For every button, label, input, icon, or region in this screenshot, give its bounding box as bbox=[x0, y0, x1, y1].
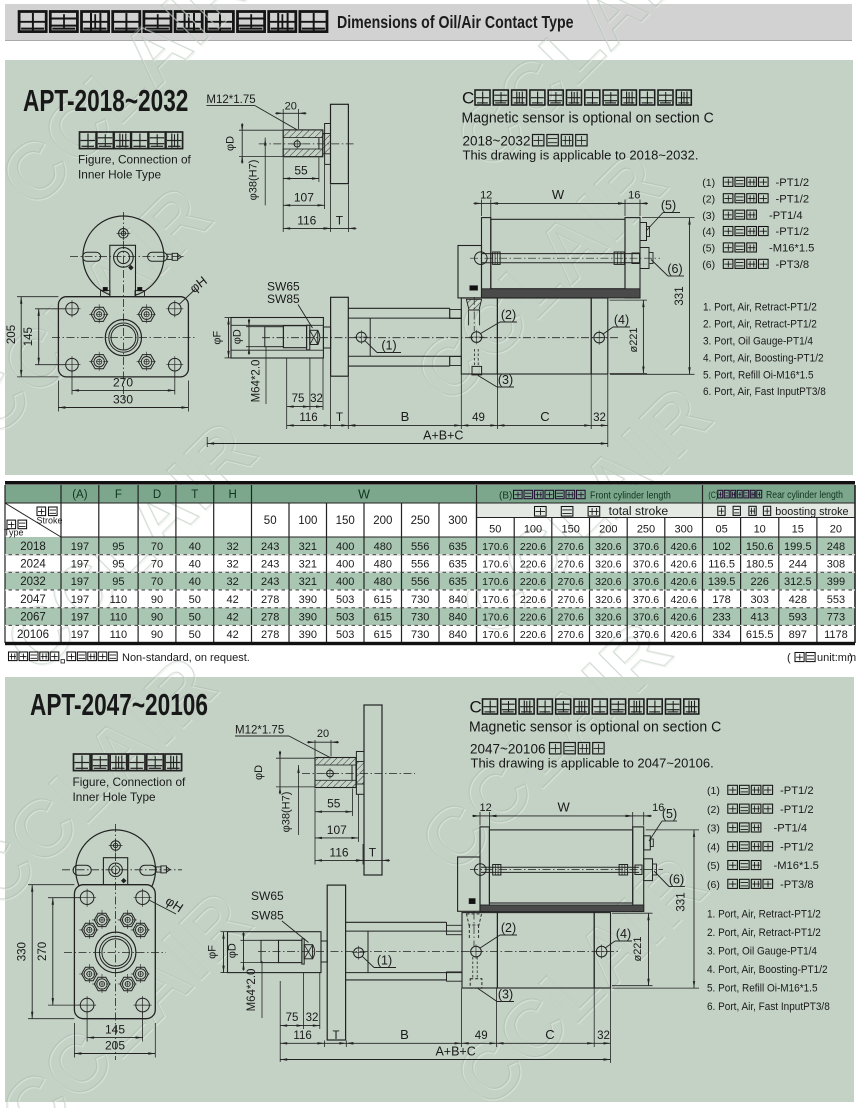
svg-text:615: 615 bbox=[374, 612, 392, 624]
svg-text:102: 102 bbox=[712, 541, 730, 553]
svg-text:-PT1/2: -PT1/2 bbox=[776, 226, 810, 238]
svg-text:553: 553 bbox=[827, 594, 845, 606]
svg-text:C: C bbox=[470, 698, 482, 717]
svg-text:250: 250 bbox=[637, 524, 655, 536]
svg-text:(4): (4) bbox=[616, 927, 631, 941]
svg-text:(3): (3) bbox=[707, 823, 720, 835]
svg-text:145: 145 bbox=[105, 1023, 125, 1037]
svg-text:243: 243 bbox=[261, 576, 279, 588]
svg-text:95: 95 bbox=[112, 541, 124, 553]
svg-text:2018~2032: 2018~2032 bbox=[463, 134, 531, 149]
svg-text:6. Port, Air, Fast InputPT3/8: 6. Port, Air, Fast InputPT3/8 bbox=[703, 386, 826, 399]
svg-text:32: 32 bbox=[593, 412, 606, 424]
svg-text:116.5: 116.5 bbox=[708, 559, 735, 571]
svg-text:T: T bbox=[336, 213, 344, 227]
svg-text:Stroke: Stroke bbox=[37, 516, 63, 526]
svg-text:197: 197 bbox=[71, 541, 89, 553]
svg-text:16: 16 bbox=[628, 190, 640, 202]
svg-text:32: 32 bbox=[306, 1012, 319, 1024]
svg-text:635: 635 bbox=[449, 559, 467, 571]
svg-text:6. Port, Air, Fast InputPT3/8: 6. Port, Air, Fast InputPT3/8 bbox=[707, 1000, 830, 1013]
svg-text:730: 730 bbox=[411, 612, 429, 624]
svg-text:390: 390 bbox=[299, 612, 317, 624]
svg-text:20: 20 bbox=[830, 524, 842, 536]
svg-text:420.6: 420.6 bbox=[671, 559, 697, 571]
svg-text:1. Port, Air, Retract-PT1/2: 1. Port, Air, Retract-PT1/2 bbox=[707, 908, 821, 921]
svg-text:2067: 2067 bbox=[20, 612, 46, 624]
svg-text:(C): (C) bbox=[708, 490, 718, 500]
svg-text:150.6: 150.6 bbox=[746, 541, 774, 553]
svg-text:840: 840 bbox=[449, 629, 467, 641]
svg-text:(6): (6) bbox=[669, 873, 684, 887]
svg-text:Rear cylinder length: Rear cylinder length bbox=[766, 489, 843, 501]
svg-text:110: 110 bbox=[110, 612, 128, 624]
svg-text:(1): (1) bbox=[377, 954, 392, 968]
svg-text:840: 840 bbox=[449, 594, 467, 606]
svg-text:400: 400 bbox=[336, 559, 354, 571]
svg-text:300: 300 bbox=[675, 524, 693, 536]
svg-text:320.6: 320.6 bbox=[595, 541, 621, 553]
svg-text:615: 615 bbox=[374, 629, 392, 641]
svg-text:107: 107 bbox=[294, 190, 314, 204]
svg-text:2. Port, Air, Retract-PT1/2: 2. Port, Air, Retract-PT1/2 bbox=[703, 318, 817, 331]
svg-text:-PT1/2: -PT1/2 bbox=[780, 804, 814, 816]
svg-text:(: ( bbox=[787, 652, 791, 664]
svg-text:197: 197 bbox=[71, 594, 89, 606]
svg-text:32: 32 bbox=[226, 541, 238, 553]
svg-text:248: 248 bbox=[827, 541, 845, 553]
svg-text:331: 331 bbox=[676, 892, 688, 911]
svg-text:Inner Hole Type: Inner Hole Type bbox=[78, 168, 162, 182]
svg-text:420.6: 420.6 bbox=[671, 576, 697, 588]
svg-text:(2): (2) bbox=[707, 804, 720, 816]
svg-text:APT-2018~2032: APT-2018~2032 bbox=[23, 82, 188, 117]
svg-text:32: 32 bbox=[226, 559, 238, 571]
svg-text:330: 330 bbox=[17, 942, 29, 961]
svg-text:(6): (6) bbox=[667, 262, 682, 276]
svg-text:199.5: 199.5 bbox=[784, 541, 812, 553]
svg-text:90: 90 bbox=[151, 594, 163, 606]
svg-text:205: 205 bbox=[105, 1039, 125, 1053]
svg-text:320.6: 320.6 bbox=[595, 594, 621, 606]
svg-text:42: 42 bbox=[226, 612, 238, 624]
svg-text:116: 116 bbox=[293, 1030, 311, 1042]
svg-text:(4): (4) bbox=[702, 226, 715, 238]
svg-text:Non-standard, on request.: Non-standard, on request. bbox=[122, 652, 250, 664]
svg-text:APT-2047~20106: APT-2047~20106 bbox=[30, 686, 208, 721]
svg-text:178: 178 bbox=[712, 594, 730, 606]
svg-text:480: 480 bbox=[374, 576, 392, 588]
svg-text:243: 243 bbox=[261, 541, 279, 553]
svg-text:2018: 2018 bbox=[20, 541, 46, 553]
svg-text:32: 32 bbox=[597, 1030, 610, 1042]
svg-text:32: 32 bbox=[310, 393, 323, 405]
svg-text:370.6: 370.6 bbox=[633, 629, 659, 641]
svg-text:303: 303 bbox=[751, 594, 769, 606]
svg-text:320.6: 320.6 bbox=[595, 629, 621, 641]
svg-text:70: 70 bbox=[151, 559, 163, 571]
svg-text:635: 635 bbox=[449, 576, 467, 588]
svg-text:φD: φD bbox=[253, 765, 265, 780]
svg-text:50: 50 bbox=[189, 612, 201, 624]
svg-text:75: 75 bbox=[286, 1012, 299, 1024]
svg-text:M12*1.75: M12*1.75 bbox=[235, 725, 284, 737]
svg-text:(4): (4) bbox=[614, 313, 629, 327]
svg-text:330: 330 bbox=[113, 393, 133, 407]
svg-text:556: 556 bbox=[411, 559, 429, 571]
svg-text:-PT1/2: -PT1/2 bbox=[780, 841, 814, 853]
svg-text:55: 55 bbox=[327, 797, 341, 811]
svg-text:2047: 2047 bbox=[20, 594, 46, 606]
svg-text:φ38(H7): φ38(H7) bbox=[248, 160, 260, 201]
svg-text:T: T bbox=[332, 1030, 339, 1042]
svg-text:W: W bbox=[557, 799, 570, 814]
svg-text:(1): (1) bbox=[702, 177, 715, 189]
svg-text:278: 278 bbox=[261, 612, 279, 624]
svg-text:145: 145 bbox=[23, 327, 35, 346]
svg-text:100: 100 bbox=[298, 515, 317, 527]
svg-text:2024: 2024 bbox=[20, 559, 46, 571]
svg-text:φF: φF bbox=[207, 945, 219, 959]
svg-text:320.6: 320.6 bbox=[595, 612, 621, 624]
svg-text:197: 197 bbox=[71, 559, 89, 571]
svg-text:370.6: 370.6 bbox=[633, 576, 659, 588]
svg-text:-PT1/4: -PT1/4 bbox=[774, 823, 808, 835]
svg-text:170.6: 170.6 bbox=[482, 576, 508, 588]
svg-text:556: 556 bbox=[411, 576, 429, 588]
svg-text:200: 200 bbox=[373, 515, 392, 527]
svg-text:420.6: 420.6 bbox=[671, 594, 697, 606]
svg-text:897: 897 bbox=[789, 629, 807, 641]
svg-text:107: 107 bbox=[327, 823, 347, 837]
svg-text:170.6: 170.6 bbox=[482, 629, 508, 641]
svg-text:331: 331 bbox=[674, 286, 686, 305]
svg-text:334: 334 bbox=[712, 629, 730, 641]
svg-text:D: D bbox=[153, 489, 161, 501]
svg-text:197: 197 bbox=[71, 629, 89, 641]
svg-text:116: 116 bbox=[297, 213, 316, 227]
svg-text:(A): (A) bbox=[72, 489, 88, 501]
svg-text:270.6: 270.6 bbox=[558, 576, 584, 588]
svg-text:428: 428 bbox=[789, 594, 807, 606]
svg-text:12: 12 bbox=[480, 190, 492, 202]
svg-text:2047~20106: 2047~20106 bbox=[470, 742, 545, 757]
svg-text:197: 197 bbox=[71, 612, 89, 624]
svg-text:50: 50 bbox=[189, 629, 201, 641]
svg-text:-PT1/2: -PT1/2 bbox=[780, 785, 814, 797]
svg-text:Figure, Connection of: Figure, Connection of bbox=[73, 775, 187, 789]
svg-text:220.6: 220.6 bbox=[520, 594, 546, 606]
svg-text:615: 615 bbox=[374, 594, 392, 606]
svg-text:70: 70 bbox=[151, 541, 163, 553]
svg-text:This drawing is applicable to: This drawing is applicable to 2018~2032. bbox=[463, 148, 699, 163]
svg-text:B: B bbox=[401, 409, 410, 424]
svg-text:220.6: 220.6 bbox=[520, 612, 546, 624]
svg-text:243: 243 bbox=[261, 559, 279, 571]
svg-text:55: 55 bbox=[294, 164, 308, 178]
svg-text:(1): (1) bbox=[707, 785, 720, 797]
svg-text:116: 116 bbox=[299, 412, 317, 424]
svg-text:308: 308 bbox=[827, 559, 845, 571]
svg-text:150: 150 bbox=[336, 515, 355, 527]
svg-text:-PT3/8: -PT3/8 bbox=[780, 879, 814, 891]
svg-text:T: T bbox=[336, 412, 343, 424]
svg-text:226: 226 bbox=[751, 576, 769, 588]
svg-text:270.6: 270.6 bbox=[558, 612, 584, 624]
svg-text:370.6: 370.6 bbox=[633, 541, 659, 553]
svg-text:270.6: 270.6 bbox=[558, 594, 584, 606]
svg-text:70: 70 bbox=[151, 576, 163, 588]
svg-text:480: 480 bbox=[374, 559, 392, 571]
svg-text:Front cylinder length: Front cylinder length bbox=[590, 490, 671, 502]
svg-text:ø221: ø221 bbox=[628, 327, 640, 352]
svg-text:φF: φF bbox=[212, 330, 224, 344]
svg-text:116: 116 bbox=[329, 845, 348, 859]
svg-text:370.6: 370.6 bbox=[633, 559, 659, 571]
svg-text:T: T bbox=[369, 845, 377, 859]
svg-text:220.6: 220.6 bbox=[520, 559, 546, 571]
svg-text:(2): (2) bbox=[702, 193, 715, 205]
svg-text:-PT1/2: -PT1/2 bbox=[776, 177, 810, 189]
svg-text:(3): (3) bbox=[702, 210, 715, 222]
svg-text:M64*2.0: M64*2.0 bbox=[246, 969, 258, 1012]
svg-text:M12*1.75: M12*1.75 bbox=[206, 94, 255, 106]
svg-text:556: 556 bbox=[411, 541, 429, 553]
svg-text:503: 503 bbox=[336, 629, 354, 641]
svg-text:20106: 20106 bbox=[17, 629, 49, 641]
svg-text:90: 90 bbox=[151, 629, 163, 641]
svg-text:615.5: 615.5 bbox=[746, 629, 774, 641]
svg-text:480: 480 bbox=[374, 541, 392, 553]
svg-text:200: 200 bbox=[599, 524, 617, 536]
svg-text:170.6: 170.6 bbox=[482, 594, 508, 606]
svg-text:773: 773 bbox=[827, 612, 845, 624]
svg-text:-M16*1.5: -M16*1.5 bbox=[774, 860, 819, 872]
svg-text:390: 390 bbox=[299, 629, 317, 641]
svg-text:20: 20 bbox=[285, 101, 297, 113]
svg-text:95: 95 bbox=[112, 559, 124, 571]
svg-text:49: 49 bbox=[475, 1030, 488, 1042]
svg-text:boosting stroke: boosting stroke bbox=[775, 506, 848, 518]
svg-text:400: 400 bbox=[336, 576, 354, 588]
svg-text:50: 50 bbox=[264, 515, 277, 527]
svg-text:2032: 2032 bbox=[20, 576, 46, 588]
svg-text:1. Port, Air, Retract-PT1/2: 1. Port, Air, Retract-PT1/2 bbox=[703, 301, 817, 314]
svg-text:312.5: 312.5 bbox=[784, 576, 812, 588]
svg-text:SW85: SW85 bbox=[267, 292, 300, 306]
svg-text:-PT1/2: -PT1/2 bbox=[776, 193, 810, 205]
svg-text:φD: φD bbox=[232, 329, 244, 344]
svg-text:170.6: 170.6 bbox=[482, 541, 508, 553]
svg-text:270: 270 bbox=[37, 942, 49, 961]
svg-text:H: H bbox=[228, 489, 236, 501]
svg-text:220.6: 220.6 bbox=[520, 629, 546, 641]
svg-text:32: 32 bbox=[226, 576, 238, 588]
svg-text:840: 840 bbox=[449, 612, 467, 624]
svg-text:390: 390 bbox=[299, 594, 317, 606]
svg-text:503: 503 bbox=[336, 594, 354, 606]
svg-text:ø221: ø221 bbox=[632, 936, 644, 961]
svg-text:50: 50 bbox=[189, 594, 201, 606]
svg-text:220.6: 220.6 bbox=[520, 576, 546, 588]
svg-text:370.6: 370.6 bbox=[633, 612, 659, 624]
svg-text:420.6: 420.6 bbox=[671, 541, 697, 553]
svg-text:A+B+C: A+B+C bbox=[435, 1045, 475, 1059]
svg-text:1178: 1178 bbox=[824, 629, 848, 641]
svg-text:2. Port, Air, Retract-PT1/2: 2. Port, Air, Retract-PT1/2 bbox=[707, 926, 821, 939]
svg-text:320.6: 320.6 bbox=[595, 559, 621, 571]
svg-text:110: 110 bbox=[110, 629, 128, 641]
svg-text:(5): (5) bbox=[702, 243, 715, 255]
svg-text:635: 635 bbox=[449, 541, 467, 553]
svg-text:Inner Hole Type: Inner Hole Type bbox=[73, 790, 157, 804]
svg-text:170.6: 170.6 bbox=[482, 612, 508, 624]
svg-text:503: 503 bbox=[336, 612, 354, 624]
svg-text:4. Port, Air, Boosting-PT1/2: 4. Port, Air, Boosting-PT1/2 bbox=[703, 352, 824, 365]
svg-text:(2): (2) bbox=[501, 921, 516, 935]
svg-text:197: 197 bbox=[71, 576, 89, 588]
svg-text:278: 278 bbox=[261, 594, 279, 606]
svg-text:150: 150 bbox=[562, 524, 580, 536]
svg-text:4. Port, Air, Boosting-PT1/2: 4. Port, Air, Boosting-PT1/2 bbox=[707, 963, 828, 976]
svg-text:75: 75 bbox=[292, 393, 305, 405]
svg-text:total stroke: total stroke bbox=[609, 504, 669, 518]
svg-text:W: W bbox=[358, 488, 370, 502]
svg-text:180.5: 180.5 bbox=[746, 559, 774, 571]
svg-text:321: 321 bbox=[299, 559, 317, 571]
svg-text:-PT3/8: -PT3/8 bbox=[776, 259, 810, 271]
svg-text:(1): (1) bbox=[381, 339, 396, 353]
svg-text:(6): (6) bbox=[707, 879, 720, 891]
svg-text:Figure, Connection of: Figure, Connection of bbox=[78, 153, 192, 167]
svg-text:This drawing is applicable to: This drawing is applicable to 2047~20106… bbox=[471, 756, 714, 771]
svg-text:05: 05 bbox=[715, 524, 727, 536]
svg-text:(5): (5) bbox=[661, 199, 676, 213]
svg-text:): ) bbox=[849, 652, 853, 664]
svg-text:(3): (3) bbox=[498, 373, 513, 387]
svg-text:(6): (6) bbox=[702, 259, 715, 271]
svg-text:F: F bbox=[115, 489, 122, 501]
svg-text:10: 10 bbox=[754, 524, 766, 536]
svg-text:-PT1/4: -PT1/4 bbox=[769, 210, 803, 222]
svg-text:320.6: 320.6 bbox=[595, 576, 621, 588]
svg-text:SW85: SW85 bbox=[251, 909, 284, 923]
svg-text:270: 270 bbox=[113, 375, 133, 389]
svg-text:M64*2.0: M64*2.0 bbox=[251, 360, 263, 403]
svg-text:399: 399 bbox=[827, 576, 845, 588]
svg-text:-M16*1.5: -M16*1.5 bbox=[769, 243, 814, 255]
svg-text:730: 730 bbox=[411, 594, 429, 606]
svg-text:730: 730 bbox=[411, 629, 429, 641]
svg-text:321: 321 bbox=[299, 541, 317, 553]
svg-text:400: 400 bbox=[336, 541, 354, 553]
svg-text:Magnetic sensor is optional on: Magnetic sensor is optional on section C bbox=[469, 719, 721, 735]
svg-text:20: 20 bbox=[317, 728, 329, 740]
svg-text:300: 300 bbox=[448, 515, 467, 527]
svg-text:(B): (B) bbox=[499, 490, 512, 501]
svg-text:593: 593 bbox=[789, 612, 807, 624]
svg-text:270.6: 270.6 bbox=[558, 559, 584, 571]
svg-text:16: 16 bbox=[652, 802, 664, 814]
svg-text:90: 90 bbox=[151, 612, 163, 624]
svg-text:T: T bbox=[191, 489, 198, 501]
svg-text:(3): (3) bbox=[498, 988, 513, 1002]
svg-text:42: 42 bbox=[226, 629, 238, 641]
svg-text:370.6: 370.6 bbox=[633, 594, 659, 606]
svg-text:φD: φD bbox=[225, 136, 237, 151]
svg-text:Type: Type bbox=[4, 528, 24, 538]
svg-text:220.6: 220.6 bbox=[520, 541, 546, 553]
svg-text:SW65: SW65 bbox=[251, 889, 284, 903]
svg-text:12: 12 bbox=[479, 802, 491, 814]
svg-text:B: B bbox=[400, 1027, 409, 1042]
svg-text:420.6: 420.6 bbox=[671, 612, 697, 624]
svg-text:50: 50 bbox=[489, 524, 501, 536]
svg-text:250: 250 bbox=[411, 515, 430, 527]
svg-text:278: 278 bbox=[261, 629, 279, 641]
svg-text:φ38(H7): φ38(H7) bbox=[281, 792, 293, 833]
svg-text:170.6: 170.6 bbox=[482, 559, 508, 571]
svg-text:321: 321 bbox=[299, 576, 317, 588]
svg-text:244: 244 bbox=[789, 559, 807, 571]
svg-text:3. Port, Oil Gauge-PT1/4: 3. Port, Oil Gauge-PT1/4 bbox=[707, 945, 817, 958]
svg-text:(5): (5) bbox=[707, 860, 720, 872]
svg-text:270.6: 270.6 bbox=[558, 541, 584, 553]
svg-text:φD: φD bbox=[227, 943, 239, 958]
svg-text:(2): (2) bbox=[501, 308, 516, 322]
svg-text:100: 100 bbox=[524, 524, 542, 536]
svg-text:5. Port, Refill Oi-M16*1.5: 5. Port, Refill Oi-M16*1.5 bbox=[707, 982, 818, 995]
svg-text:A+B+C: A+B+C bbox=[423, 429, 463, 443]
svg-text:270.6: 270.6 bbox=[558, 629, 584, 641]
svg-text:413: 413 bbox=[751, 612, 769, 624]
svg-text:40: 40 bbox=[189, 576, 201, 588]
svg-text:Magnetic sensor is optional on: Magnetic sensor is optional on section C bbox=[462, 110, 714, 126]
svg-text:C: C bbox=[462, 89, 474, 108]
svg-text:42: 42 bbox=[226, 594, 238, 606]
svg-text:139.5: 139.5 bbox=[708, 576, 736, 588]
svg-text:49: 49 bbox=[472, 412, 485, 424]
svg-text:15: 15 bbox=[792, 524, 804, 536]
svg-text:233: 233 bbox=[712, 612, 730, 624]
svg-text:(4): (4) bbox=[707, 841, 720, 853]
svg-text:95: 95 bbox=[112, 576, 124, 588]
svg-text:40: 40 bbox=[189, 559, 201, 571]
svg-text:40: 40 bbox=[189, 541, 201, 553]
svg-text:C: C bbox=[540, 409, 549, 424]
svg-text:5. Port, Refill Oi-M16*1.5: 5. Port, Refill Oi-M16*1.5 bbox=[703, 369, 814, 382]
svg-text:W: W bbox=[552, 187, 565, 202]
svg-text:3. Port, Oil Gauge-PT1/4: 3. Port, Oil Gauge-PT1/4 bbox=[703, 335, 813, 348]
svg-text:110: 110 bbox=[110, 594, 128, 606]
svg-text:C: C bbox=[545, 1027, 554, 1042]
svg-text:420.6: 420.6 bbox=[671, 629, 697, 641]
svg-text:205: 205 bbox=[6, 325, 18, 344]
